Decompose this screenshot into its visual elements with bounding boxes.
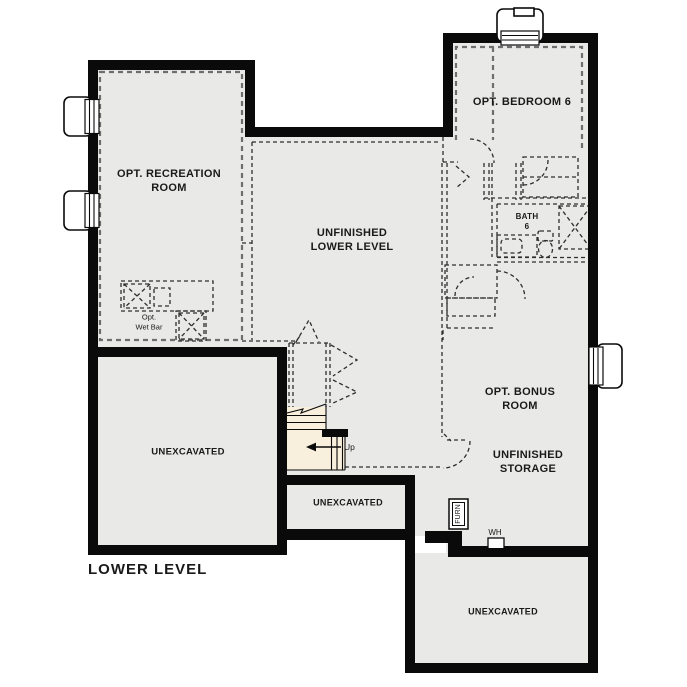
label-wet-bar: Opt. Wet Bar [136,313,163,332]
room-label-recreation: OPT. RECREATION ROOM [117,167,221,195]
room-label-bonus: OPT. BONUS ROOM [485,385,555,413]
room-label-bath6: BATH 6 [516,212,539,232]
room-label-unfinished-lower-level: UNFINISHED LOWER LEVEL [311,226,394,254]
window-well-left-upper [64,97,99,136]
plan-title: LOWER LEVEL [88,563,207,577]
floor-plan-drawing [0,0,687,687]
room-label-unexcavated-left: UNEXCAVATED [151,447,225,458]
room-label-unexcavated-bottom-right: UNEXCAVATED [468,607,538,618]
label-water-heater: WH [488,526,501,540]
label-furnace: FURN [452,504,466,523]
window-well-right [589,344,622,388]
window-well-left-lower [64,191,99,230]
room-label-bedroom6: OPT. BEDROOM 6 [473,95,571,109]
label-stairs-up: Up [344,440,355,454]
window-well-top [497,8,543,45]
floor-plan: OPT. RECREATION ROOM UNFINISHED LOWER LE… [0,0,687,687]
room-label-unexcavated-middle: UNEXCAVATED [313,498,383,509]
room-label-unfinished-storage: UNFINISHED STORAGE [493,448,563,476]
